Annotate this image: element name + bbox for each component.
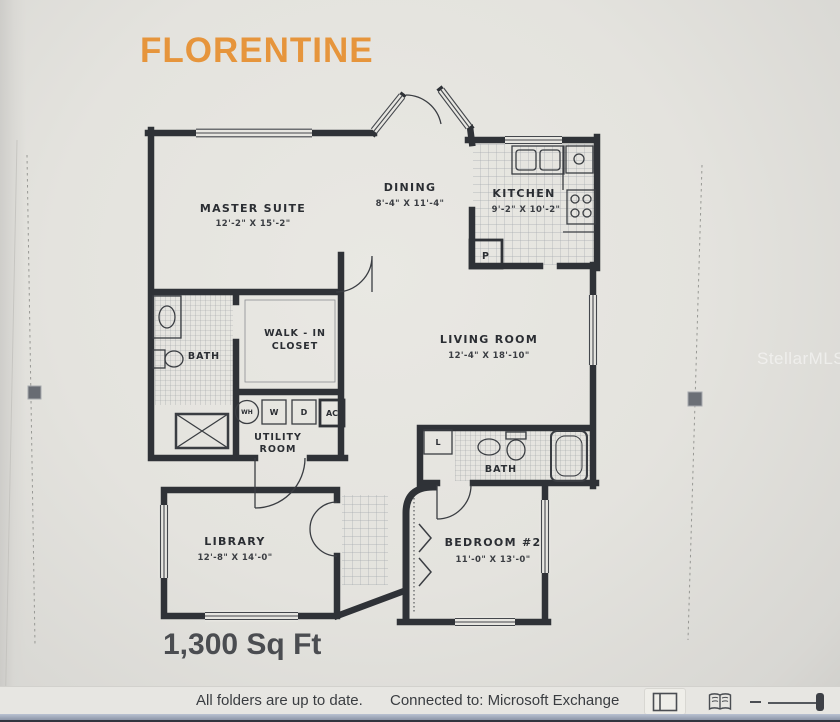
screen-bezel-line bbox=[5, 140, 17, 722]
connection-status: Connected to: Microsoft Exchange bbox=[390, 692, 619, 709]
floorplan-image[interactable]: MASTER SUITE 12'-2" X 15'-2" DINING 8'-4… bbox=[0, 0, 840, 722]
dims-library: 12'-8" X 14'-0" bbox=[197, 553, 272, 563]
label-living-room: LIVING ROOM bbox=[440, 333, 538, 346]
label-washer: W bbox=[270, 408, 279, 417]
label-master-suite: MASTER SUITE bbox=[200, 202, 306, 215]
reading-view-button[interactable] bbox=[700, 689, 740, 714]
label-walkin-1: WALK - IN bbox=[264, 328, 326, 339]
label-bedroom2: BEDROOM #2 bbox=[445, 536, 542, 549]
dims-dining: 8'-4" X 11'-4" bbox=[376, 199, 445, 209]
selection-handle-right[interactable] bbox=[688, 392, 702, 406]
reading-view-icon bbox=[707, 692, 733, 712]
label-utility-1: UTILITY bbox=[254, 432, 302, 443]
folders-status: All folders are up to date. bbox=[196, 692, 363, 709]
label-dryer: D bbox=[301, 408, 308, 417]
label-master-bath: BATH bbox=[188, 351, 220, 362]
square-footage: 1,300 Sq Ft bbox=[163, 628, 321, 662]
label-bath2: BATH bbox=[485, 464, 517, 475]
selection-handle-left[interactable] bbox=[28, 386, 41, 399]
label-pantry: P bbox=[482, 251, 490, 262]
mls-watermark: StellarMLS bbox=[757, 349, 840, 369]
label-dining: DINING bbox=[384, 181, 437, 194]
dims-kitchen: 9'-2" X 10'-2" bbox=[492, 205, 561, 215]
zoom-slider-handle[interactable] bbox=[816, 693, 824, 711]
normal-view-button[interactable] bbox=[645, 689, 685, 714]
zoom-out-button[interactable] bbox=[750, 701, 761, 703]
label-water-heater: WH bbox=[241, 409, 253, 416]
label-walkin-2: CLOSET bbox=[272, 341, 319, 352]
label-library: LIBRARY bbox=[204, 535, 265, 548]
label-linen: L bbox=[435, 438, 440, 447]
dims-bedroom2: 11'-0" X 13'-0" bbox=[455, 555, 530, 565]
label-utility-2: ROOM bbox=[260, 444, 297, 455]
normal-view-icon bbox=[652, 692, 678, 712]
label-kitchen: KITCHEN bbox=[492, 187, 555, 200]
dims-master-suite: 12'-2" X 15'-2" bbox=[215, 219, 290, 229]
dims-living-room: 12'-4" X 18'-10" bbox=[448, 351, 529, 361]
screen-photo: { "title": "FLORENTINE", "area_label": "… bbox=[0, 0, 840, 722]
status-bar: All folders are up to date. Connected to… bbox=[0, 686, 840, 715]
label-ac: AC bbox=[326, 409, 338, 418]
